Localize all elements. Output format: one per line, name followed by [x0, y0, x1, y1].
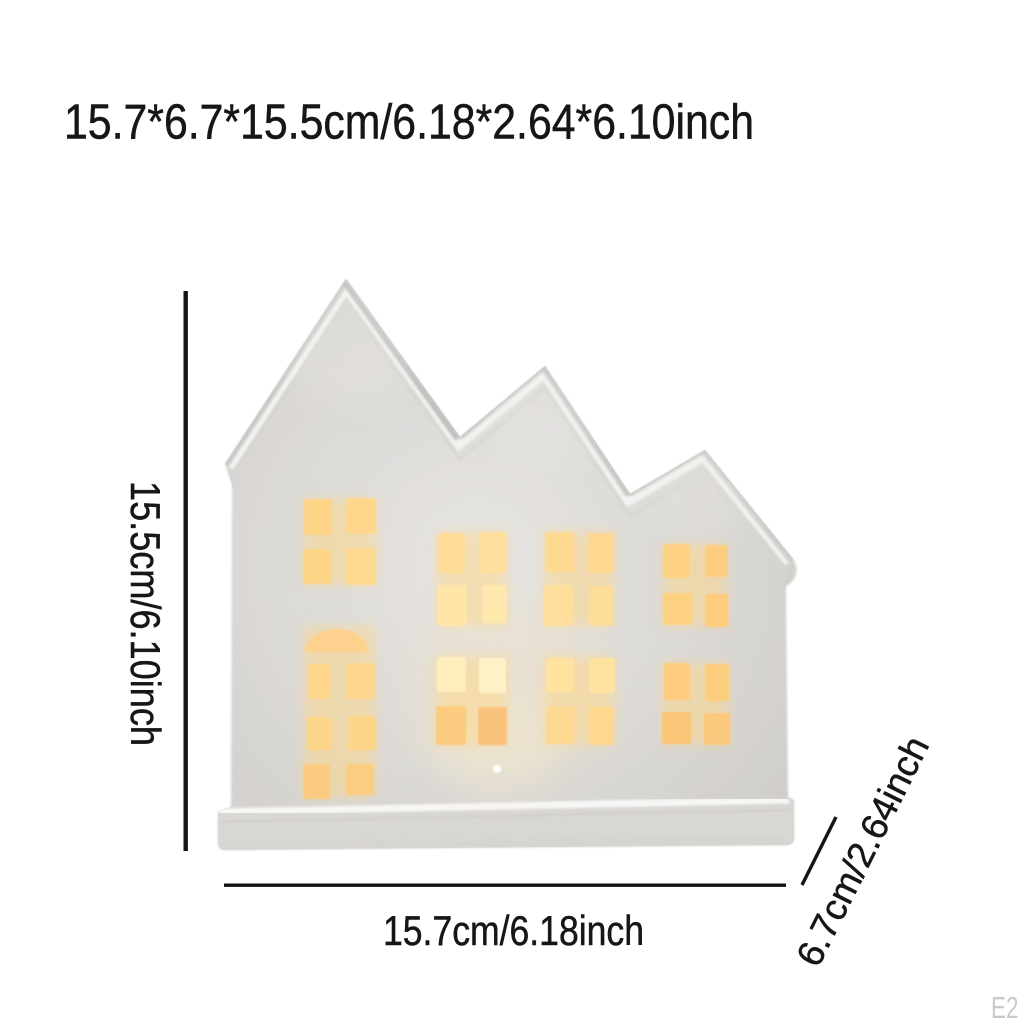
- svg-text:15.5cm/6.10inch: 15.5cm/6.10inch: [122, 481, 169, 746]
- svg-text:15.7*6.7*15.5cm/6.18*2.64*6.10: 15.7*6.7*15.5cm/6.18*2.64*6.10inch: [64, 96, 754, 150]
- svg-text:15.7cm/6.18inch: 15.7cm/6.18inch: [383, 907, 644, 954]
- svg-text:E2: E2: [991, 990, 1019, 1024]
